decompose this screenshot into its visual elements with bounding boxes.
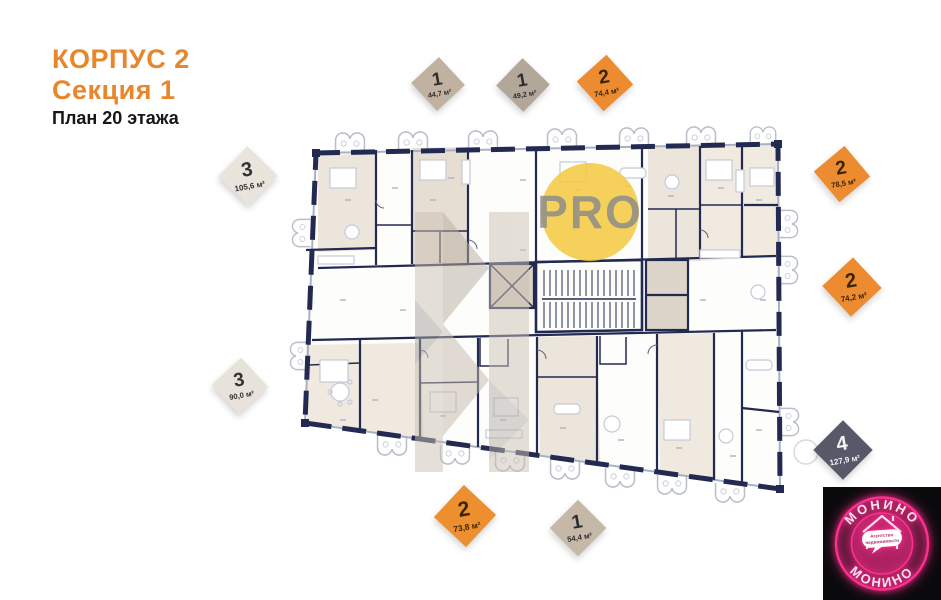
apartment-area: 74,4 м² [594, 86, 620, 99]
apartment-area: 74,2 м² [840, 290, 867, 303]
pro-text: PRO [537, 186, 643, 238]
apartment-rooms-count: 2 [597, 68, 611, 88]
apartment-rooms-count: 1 [431, 70, 444, 89]
agency-logo: МОНИНО МОНИНО Агентство недвижимости [823, 487, 941, 600]
apartment-rooms-count: 1 [516, 71, 529, 90]
apartment-area: 73,8 м² [452, 519, 481, 534]
apartment-rooms-count: 2 [844, 272, 858, 293]
apartment-rooms-count: 2 [457, 500, 472, 522]
apartment-area: 78,5 м² [831, 177, 857, 190]
apartment-rooms-count: 2 [834, 159, 848, 179]
apartment-area: 105,6 м² [234, 179, 266, 193]
apartment-rooms-count: 1 [570, 513, 584, 533]
agency-logo-svg: МОНИНО МОНИНО Агентство недвижимости [823, 487, 941, 600]
apartment-rooms-count: 3 [240, 161, 254, 182]
apartment-rooms-count: 3 [232, 371, 246, 391]
apartment-area: 44,7 м² [427, 87, 452, 100]
apartment-area: 127,9 м² [829, 453, 861, 467]
apartment-area: 54,4 м² [567, 531, 593, 544]
page: КОРПУС 2 Секция 1 План 20 этажа [0, 0, 941, 600]
apartment-area: 90,0 м² [229, 389, 255, 402]
apartment-area: 49,2 м² [512, 88, 537, 101]
apartment-rooms-count: 4 [835, 435, 849, 456]
